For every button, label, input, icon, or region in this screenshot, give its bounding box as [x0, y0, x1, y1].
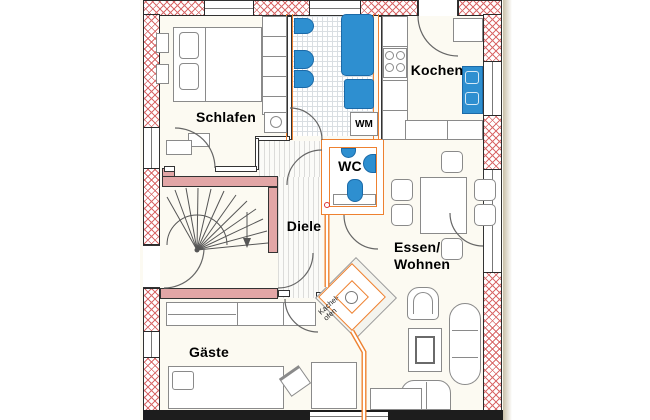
door-arc-guest	[285, 299, 318, 332]
door-arc-wc	[287, 150, 322, 185]
new-wall-trace-stove-to-bottom	[352, 331, 364, 420]
stair-direction-arrow	[243, 238, 251, 248]
room-label-wc: WC	[334, 158, 366, 174]
stair-newel	[195, 248, 200, 253]
room-label-diele: Diele	[281, 218, 327, 234]
door-arc-bedroom	[175, 128, 215, 168]
room-label-schlafen: Schlafen	[188, 108, 264, 126]
room-label-kochen: Kochen	[408, 61, 466, 79]
door-arc-entrance	[164, 248, 204, 288]
door-arc-hall-living	[344, 215, 378, 249]
door-arc-kitchen	[418, 16, 458, 56]
door-arc-bath	[290, 108, 322, 140]
room-label-essen-wohnen: Essen/ Wohnen	[394, 239, 458, 275]
door-arc-understair	[278, 253, 313, 288]
room-label-gaeste: Gäste	[182, 343, 236, 361]
doors-stairs-overlay	[0, 0, 650, 420]
floor-plan-canvas: WM	[0, 0, 650, 420]
staircase	[167, 188, 268, 253]
